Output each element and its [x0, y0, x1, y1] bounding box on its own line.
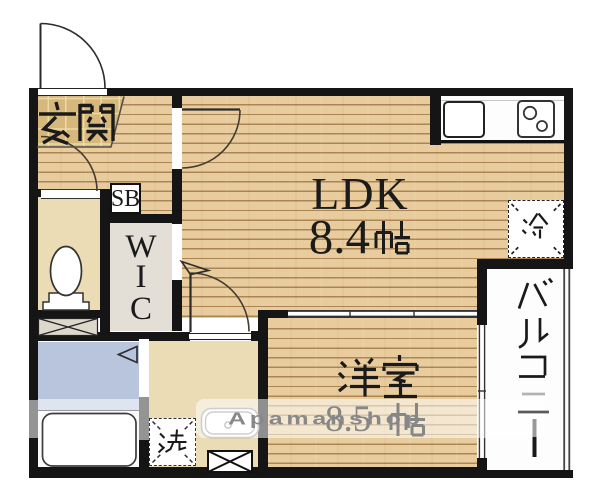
svg-text:8.5: 8.5 — [325, 399, 371, 440]
